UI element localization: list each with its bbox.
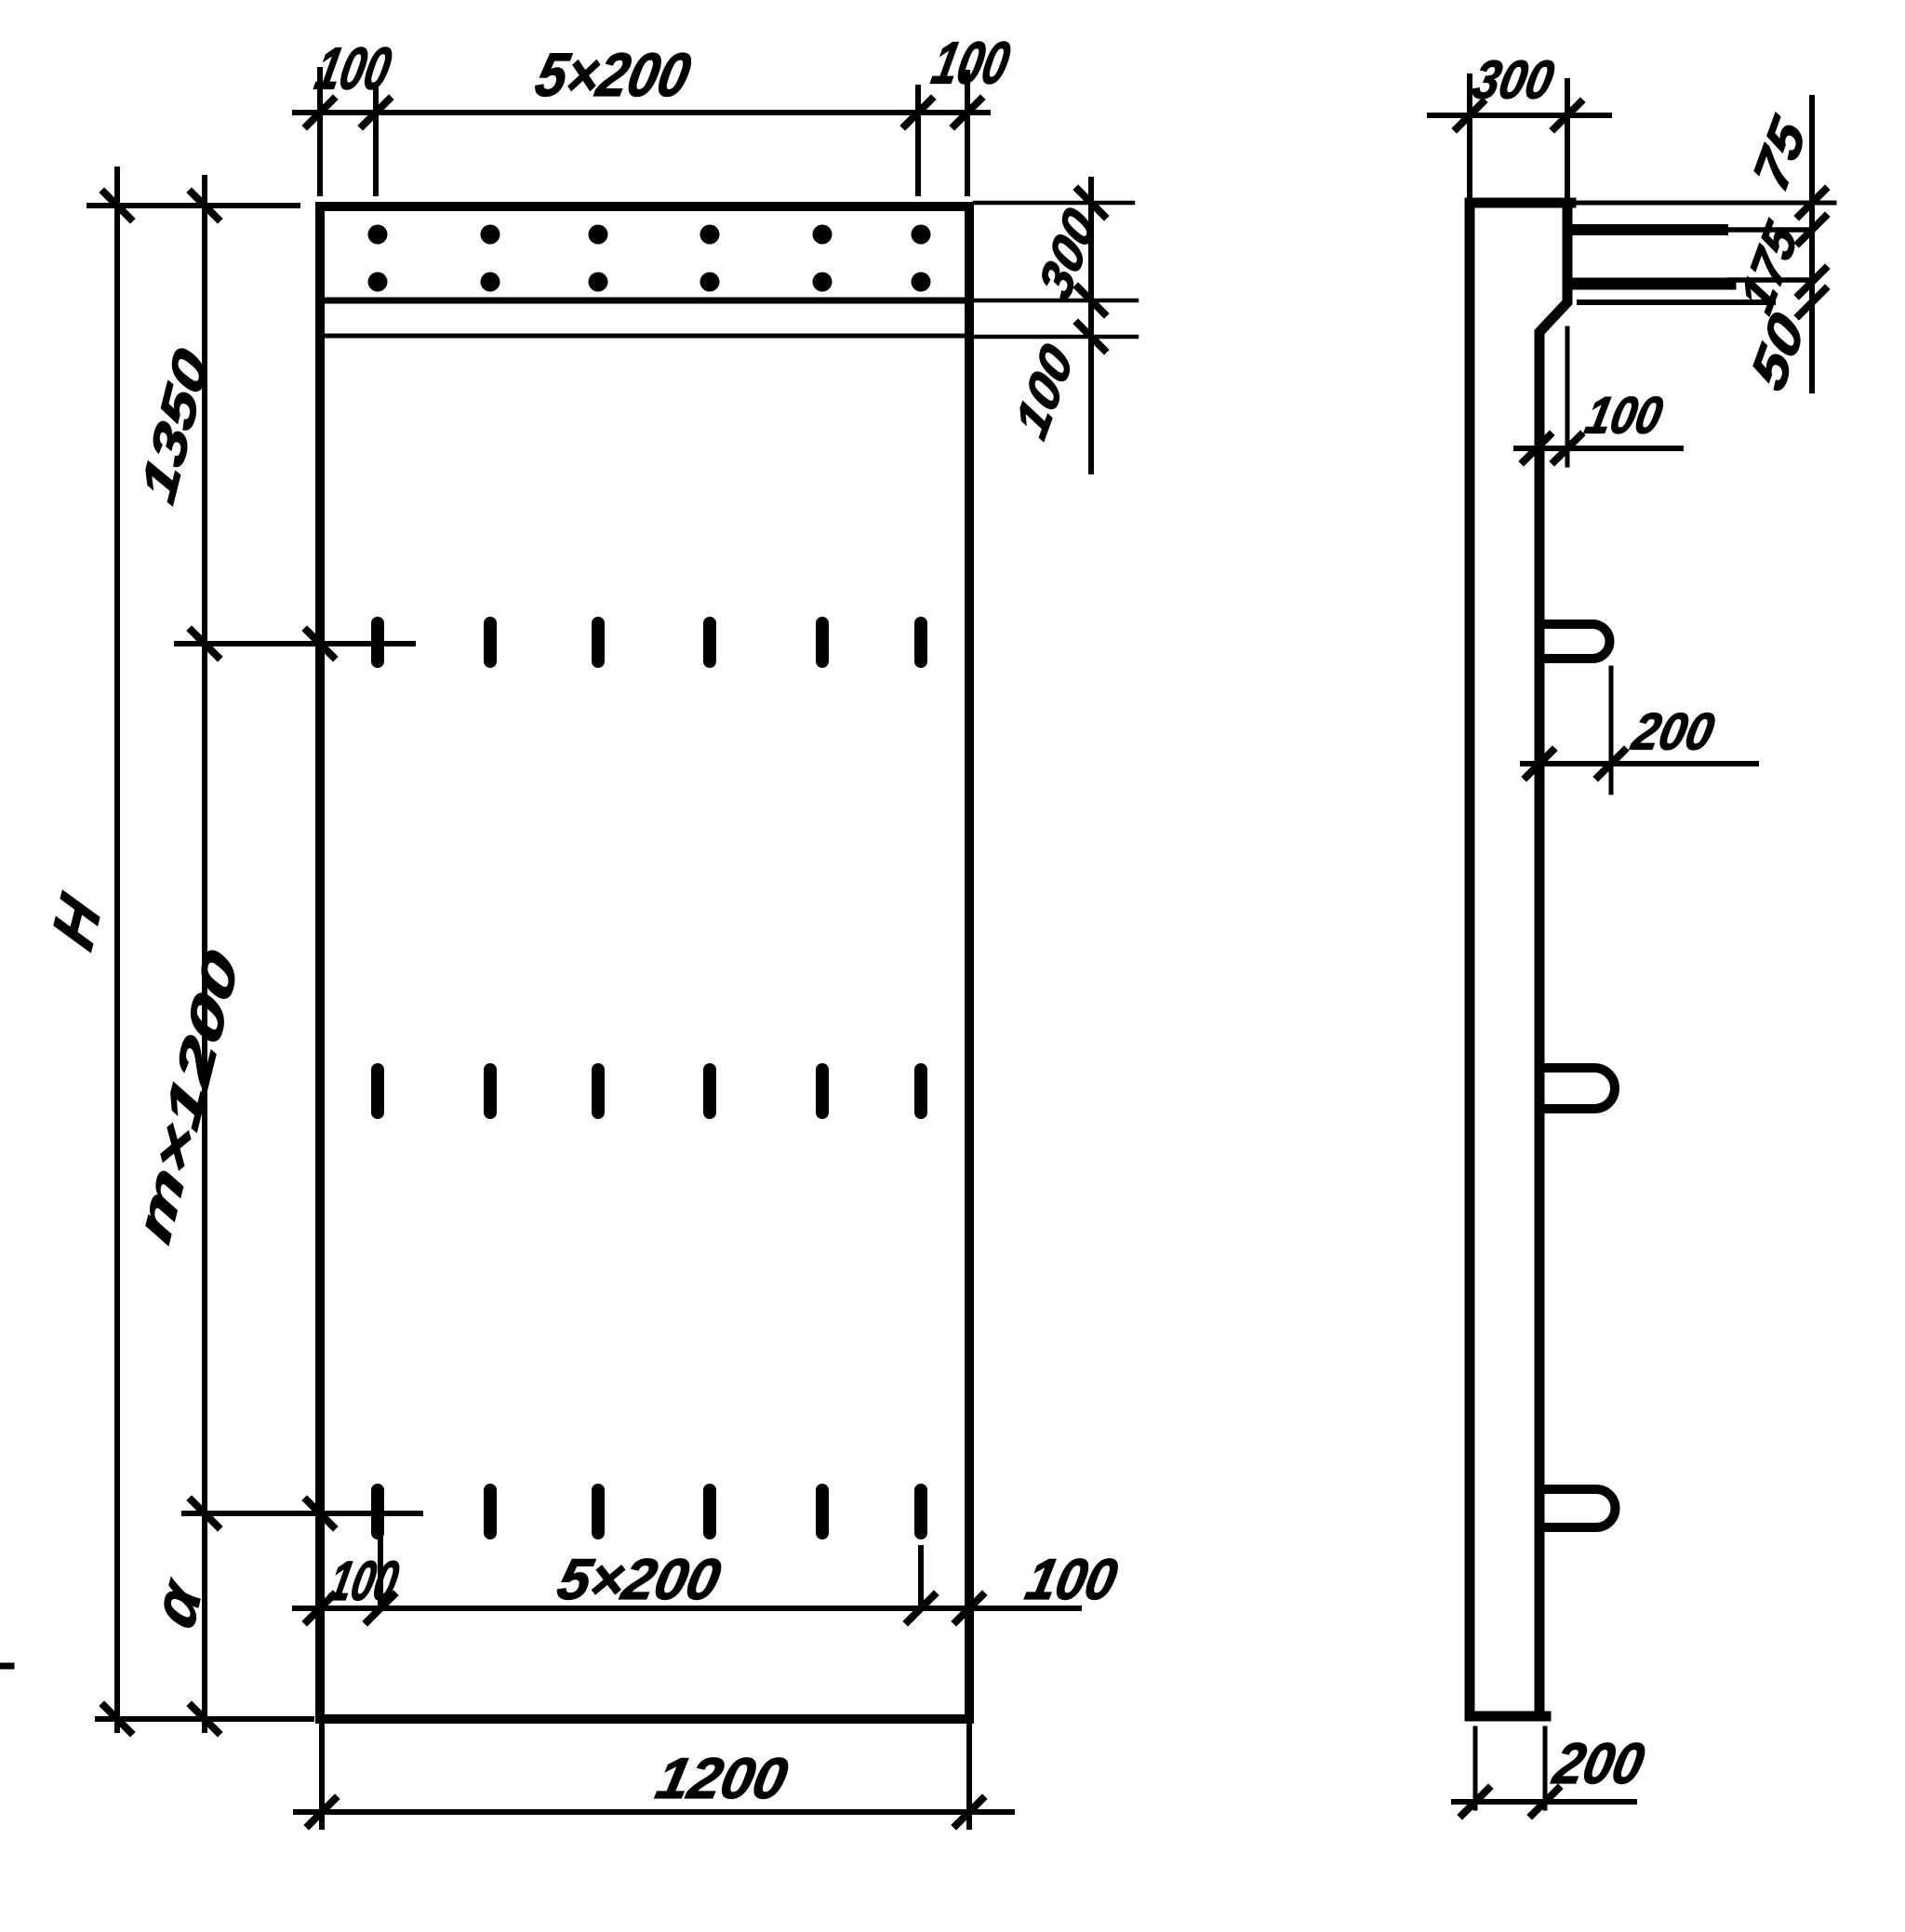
svg-text:200: 200 — [1548, 1731, 1650, 1795]
svg-text:5×200: 5×200 — [553, 1547, 726, 1611]
svg-text:200: 200 — [1627, 702, 1719, 760]
svg-text:5×200: 5×200 — [530, 41, 697, 109]
svg-text:100: 100 — [926, 29, 1015, 96]
svg-text:300: 300 — [1468, 50, 1559, 110]
svg-text:100: 100 — [1020, 1547, 1123, 1611]
svg-text:100: 100 — [310, 34, 396, 101]
svg-text:100: 100 — [1580, 386, 1667, 444]
svg-text:1200: 1200 — [651, 1746, 793, 1810]
svg-text:100: 100 — [324, 1549, 404, 1611]
